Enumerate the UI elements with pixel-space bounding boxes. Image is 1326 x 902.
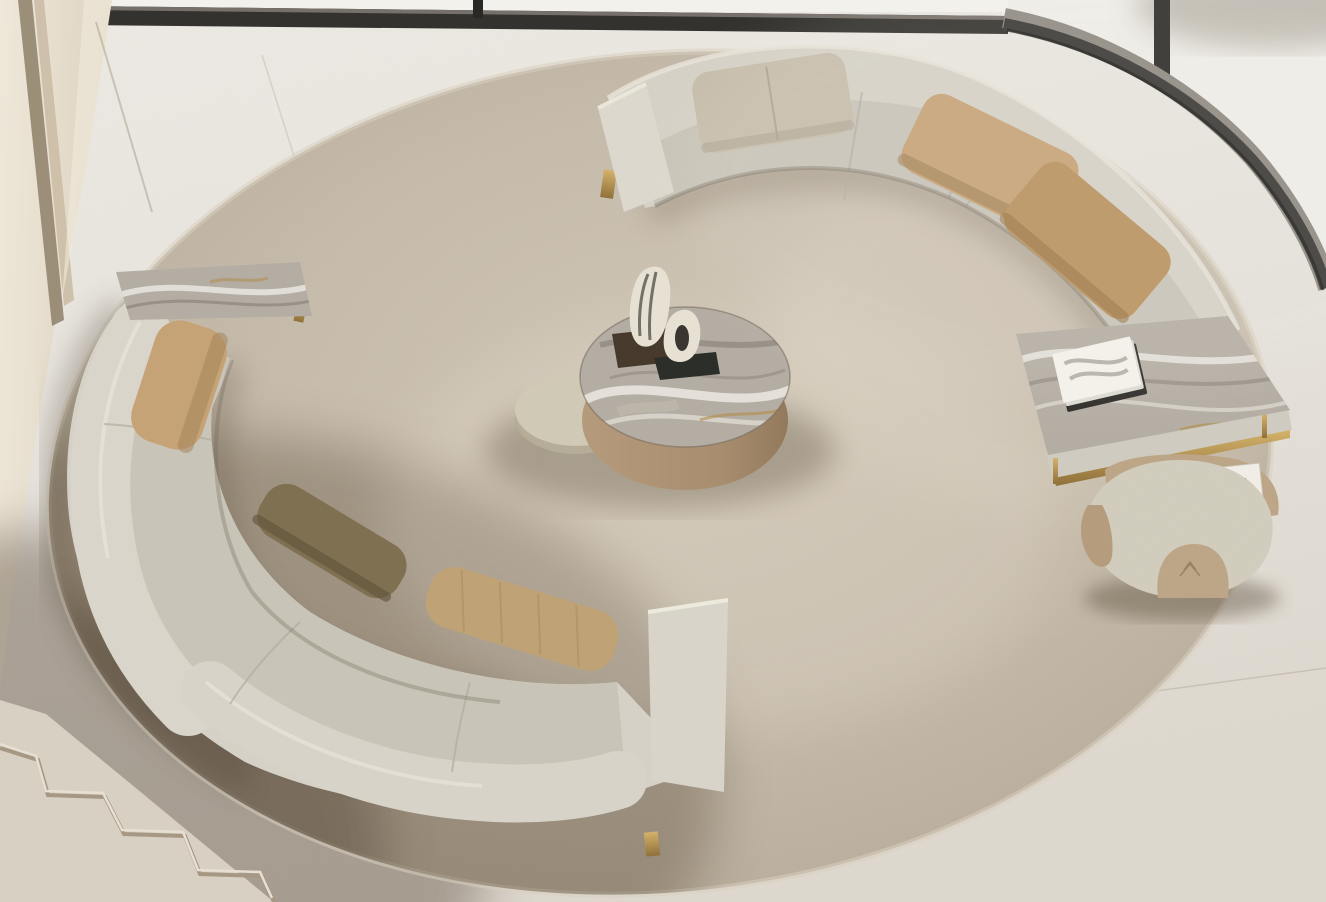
bench-right-gold-leg	[1053, 458, 1058, 484]
window-mullion	[473, 0, 483, 18]
bench-left	[116, 262, 315, 323]
magazine-basket: LE CORBUSIER ·OUIAT	[1081, 454, 1280, 620]
bench-right-gold-leg-2	[1262, 414, 1267, 438]
sculpture-small-hole	[675, 325, 689, 351]
sofa-lower-armrest	[648, 600, 728, 792]
living-room-photo: LE CORBUSIER ·OUIAT	[0, 0, 1326, 902]
sofa-lower-gold-leg	[644, 831, 660, 856]
